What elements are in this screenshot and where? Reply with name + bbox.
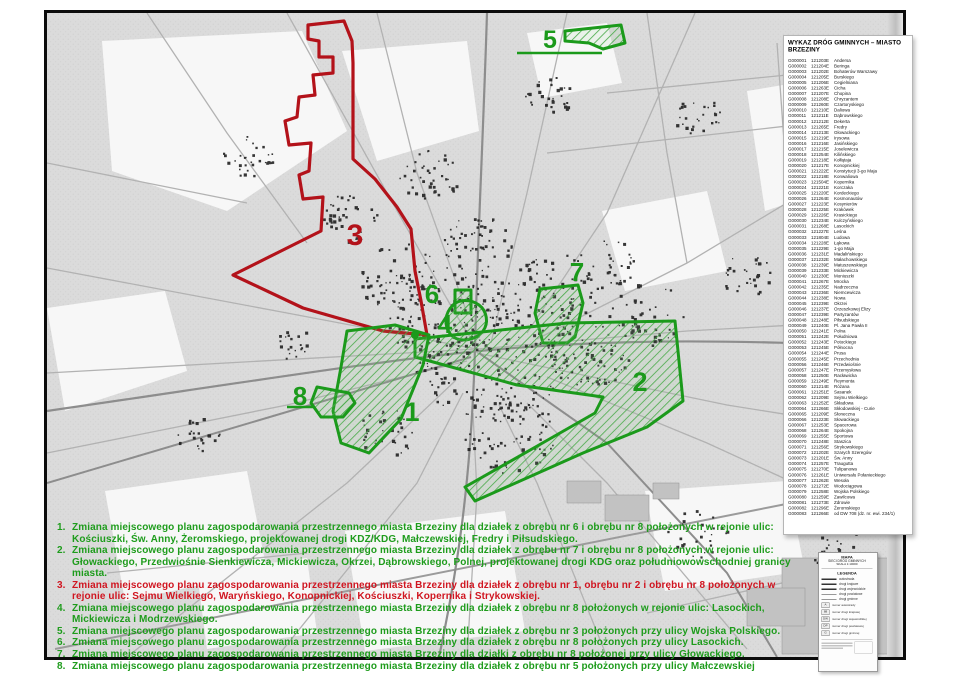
legend-symbol-label: numer autostrady: [832, 604, 855, 607]
legend-item: drogi krajowe: [822, 583, 873, 587]
note-item: 2.Zmiana miejscowego planu zagospodarowa…: [57, 545, 797, 580]
legend-symbol-item: Gnumer drogi gminnej: [822, 631, 873, 637]
road-register-title: WYKAZ DRÓG GMINNYCH – MIASTO BRZEZINY: [788, 39, 910, 53]
note-number: 6.: [57, 637, 72, 649]
note-text: Zmiana miejscowego planu zagospodarowani…: [72, 637, 797, 649]
zone-number-label: 2: [632, 367, 647, 397]
note-item: 4.Zmiana miejscowego planu zagospodarowa…: [57, 603, 797, 626]
legend-header: MAPA SIECI DRÓG GMINNYCH SKALA 1:10000: [822, 555, 873, 566]
legend-title: LEGENDA: [822, 569, 873, 576]
legend-item-label: drogi wojewódzkie: [839, 588, 866, 592]
legend-symbol-items: Anumer autostrady88numer drogi krajowejD…: [822, 603, 873, 637]
road-class-line-swatch: [822, 584, 837, 585]
zone-number-label: 4: [438, 309, 453, 339]
road-register-table: G000001121203EAndersaG000002121204EBerin…: [788, 58, 910, 516]
zone-8-area: [311, 387, 355, 417]
note-text: Zmiana miejscowego planu zagospodarowani…: [72, 545, 797, 580]
legend-symbol-label: numer drogi gminnej: [832, 632, 859, 635]
legend-item: autostrada: [822, 578, 873, 582]
zone-number-label: 8: [293, 381, 307, 411]
legend-symbol-label: numer drogi krajowej: [832, 611, 860, 614]
road-class-line-swatch: [822, 589, 837, 590]
road-number-badge: A: [822, 603, 830, 609]
legend-item-label: drogi krajowe: [839, 583, 858, 587]
note-number: 3.: [57, 580, 72, 603]
legend-symbol-item: 88numer drogi krajowej: [822, 610, 873, 616]
legend-footer-text: [822, 642, 853, 654]
legend-header-line: SKALA 1:10000: [822, 563, 873, 566]
legend-symbol-item: DPnumer drogi powiatowej: [822, 624, 873, 630]
note-number: 8.: [57, 661, 72, 673]
note-text: Zmiana miejscowego planu zagospodarowani…: [72, 603, 797, 626]
zone-number-label: 6: [425, 279, 439, 309]
road-number: 121266E: [811, 511, 834, 517]
note-number: 7.: [57, 649, 72, 661]
road-number-badge: G: [822, 631, 830, 637]
note-number: 1.: [57, 522, 72, 545]
note-text: Zmiana miejscowego planu zagospodarowani…: [72, 522, 797, 545]
road-number-badge: 88: [822, 610, 830, 616]
road-code: G000083: [788, 511, 811, 517]
road-class-line-swatch: [822, 578, 837, 580]
legend-footer: [822, 639, 873, 654]
plan-change-notes: 1.Zmiana miejscowego planu zagospodarowa…: [57, 522, 797, 672]
zone-number-label: 5: [543, 26, 557, 54]
note-number: 5.: [57, 626, 72, 638]
note-text: Zmiana miejscowego planu zagospodarowani…: [72, 580, 797, 603]
road-number-badge: DP: [822, 624, 830, 630]
note-text: Zmiana miejscowego planu zagospodarowani…: [72, 626, 797, 638]
note-item: 1.Zmiana miejscowego planu zagospodarowa…: [57, 522, 797, 545]
note-item: 5.Zmiana miejscowego planu zagospodarowa…: [57, 626, 797, 638]
legend-item-label: autostrada: [839, 578, 854, 582]
note-number: 4.: [57, 603, 72, 626]
legend-item: drogi powiatowe: [822, 593, 873, 597]
zone-number-label: 3: [347, 219, 364, 252]
legend-item-label: drogi powiatowe: [839, 593, 862, 597]
road-register-panel: WYKAZ DRÓG GMINNYCH – MIASTO BRZEZINY G0…: [783, 35, 913, 535]
legend-item-label: drogi gminne: [839, 598, 858, 602]
zone-number-label: 7: [570, 257, 584, 287]
page: { "map": { "zones": [ {"label":"1","colo…: [0, 0, 960, 678]
legend-footer-stamp: [855, 642, 873, 654]
legend-symbol-item: Anumer autostrady: [822, 603, 873, 609]
note-text: Zmiana miejscowego planu zagospodarowani…: [72, 661, 797, 673]
road-class-line-swatch: [822, 594, 837, 595]
legend-symbol-item: DWnumer drogi wojewódzkiej: [822, 617, 873, 623]
note-item: 7.Zmiana miejscowego planu zagospodarowa…: [57, 649, 797, 661]
road-class-line-swatch: [822, 599, 837, 600]
road-row: G000083121266Eod DW 708 (dz. nr. ewi. 23…: [788, 511, 910, 517]
legend-box: MAPA SIECI DRÓG GMINNYCH SKALA 1:10000 L…: [818, 552, 878, 672]
note-number: 2.: [57, 545, 72, 580]
zone-number-label: 1: [404, 397, 419, 427]
legend-symbol-label: numer drogi wojewódzkiej: [832, 618, 867, 621]
legend-item: drogi gminne: [822, 598, 873, 602]
legend-symbol-label: numer drogi powiatowej: [832, 625, 864, 628]
note-item: 3.Zmiana miejscowego planu zagospodarowa…: [57, 580, 797, 603]
legend-line-items: autostradadrogi krajowedrogi wojewódzkie…: [822, 578, 873, 602]
note-text: Zmiana miejscowego planu zagospodarowani…: [72, 649, 797, 661]
note-item: 8.Zmiana miejscowego planu zagospodarowa…: [57, 661, 797, 673]
zone-junction-dot: [411, 331, 419, 339]
road-number-badge: DW: [822, 617, 830, 623]
note-item: 6.Zmiana miejscowego planu zagospodarowa…: [57, 637, 797, 649]
legend-item: drogi wojewódzkie: [822, 588, 873, 592]
road-name: od DW 708 (dz. nr. ewi. 234/1): [834, 511, 910, 517]
